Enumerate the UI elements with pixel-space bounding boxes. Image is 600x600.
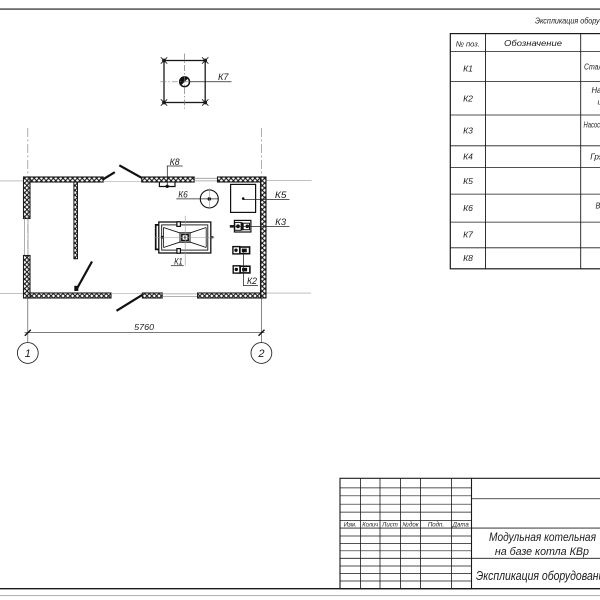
svg-text:К7: К7 <box>218 72 229 82</box>
svg-text:Изм.: Изм. <box>344 521 357 528</box>
svg-text:К8: К8 <box>463 253 473 263</box>
svg-text:К6: К6 <box>178 189 188 199</box>
svg-text:Подп.: Подп. <box>428 521 444 528</box>
svg-text:Стальной котел КВр-0,93: Стальной котел КВр-0,93 <box>584 62 600 71</box>
svg-text:К3: К3 <box>463 125 473 135</box>
svg-text:К1: К1 <box>463 63 473 73</box>
svg-text:К3: К3 <box>275 217 287 227</box>
svg-text:Колич: Колич <box>362 521 379 528</box>
svg-text:К2: К2 <box>247 276 258 286</box>
svg-text:Насос подпиточный: Насос подпиточный <box>584 120 600 129</box>
svg-text:Дата: Дата <box>452 521 470 528</box>
svg-text:К2: К2 <box>463 93 473 103</box>
svg-text:1: 1 <box>25 348 31 360</box>
svg-text:Вентилятор: Вентилятор <box>596 202 600 211</box>
svg-text:2: 2 <box>257 348 264 360</box>
svg-text:Экспликация оборудования: Экспликация оборудования <box>476 569 600 583</box>
svg-text:К4: К4 <box>463 152 473 162</box>
svg-text:К8: К8 <box>170 157 181 167</box>
svg-text:Насос сетевой: Насос сетевой <box>592 86 600 95</box>
svg-text:Грязевик: Грязевик <box>590 152 600 161</box>
svg-text:К1: К1 <box>174 256 183 266</box>
svg-text:Обозначение: Обозначение <box>504 39 563 48</box>
svg-text:К6: К6 <box>463 203 473 213</box>
svg-text:К7: К7 <box>463 230 474 240</box>
svg-text:Модульная котельная: Модульная котельная <box>489 531 596 544</box>
svg-text:Лист: Лист <box>381 521 398 528</box>
svg-text:К5: К5 <box>463 176 473 186</box>
svg-text:№док: №док <box>402 521 419 528</box>
svg-text:на базе котла КВр: на базе котла КВр <box>495 546 589 558</box>
svg-text:№ поз.: № поз. <box>456 40 480 49</box>
svg-text:Экспликация оборудования: Экспликация оборудования <box>535 16 600 26</box>
svg-text:5760: 5760 <box>134 322 154 332</box>
svg-text:К5: К5 <box>275 190 287 200</box>
